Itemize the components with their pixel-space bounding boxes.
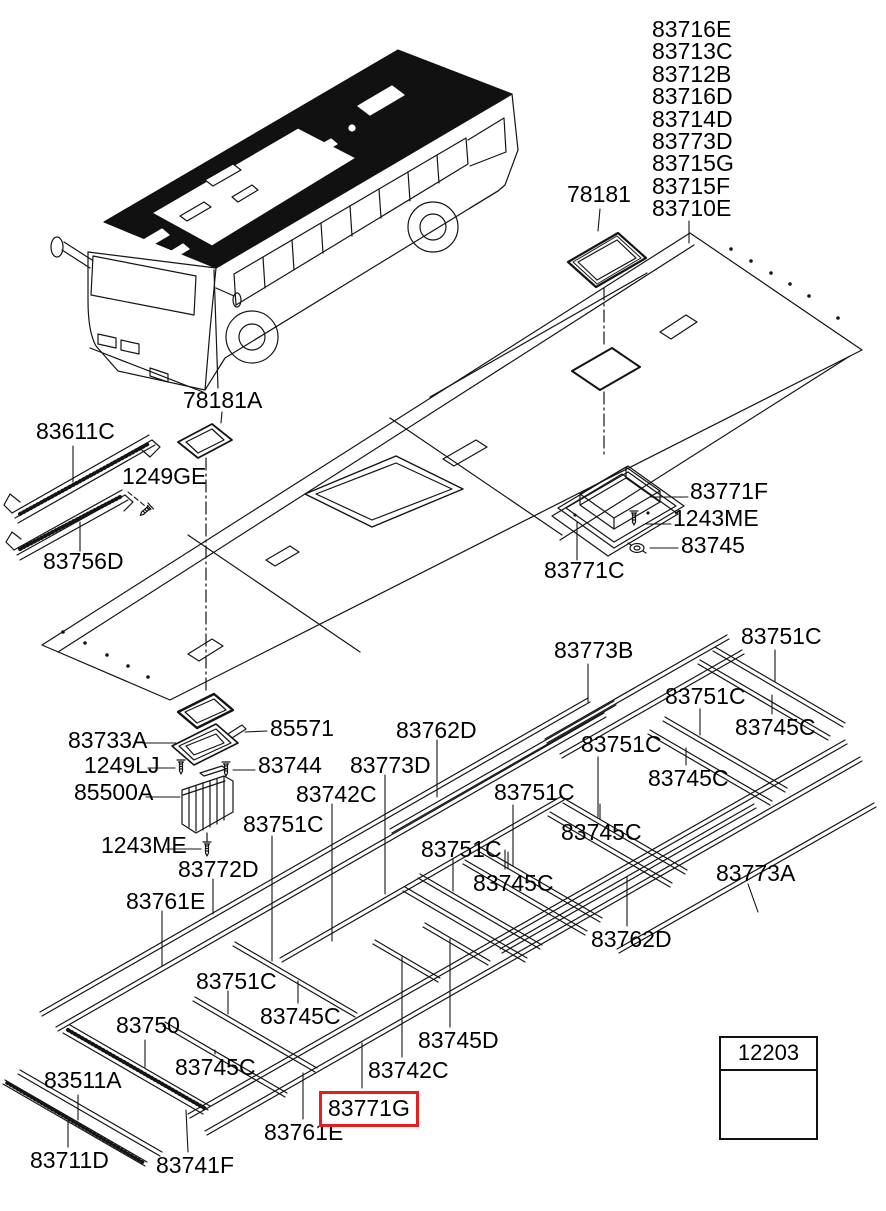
part-label-83751C[interactable]: 83751C <box>243 813 324 836</box>
part-label-83744[interactable]: 83744 <box>258 754 322 777</box>
screw-icon <box>138 503 154 518</box>
part-label-83773B[interactable]: 83773B <box>554 639 633 662</box>
screw-icon <box>222 762 230 776</box>
screw-icon <box>630 511 638 525</box>
part-label-83771C[interactable]: 83771C <box>544 559 625 582</box>
part-label-83711D[interactable]: 83711D <box>30 1149 109 1172</box>
part-label-83745[interactable]: 83745 <box>681 534 745 557</box>
part-label-83751C[interactable]: 83751C <box>196 970 277 993</box>
part-label-83511A[interactable]: 83511A <box>44 1069 122 1092</box>
part-label-83771F[interactable]: 83771F <box>690 480 768 503</box>
parts-diagram-canvas: 83716E83713C83712B83716D83714D83773D8371… <box>0 0 886 1211</box>
part-list-item-83715F[interactable]: 83715F <box>652 175 734 197</box>
part-label-83762D[interactable]: 83762D <box>396 719 477 742</box>
part-label-83745C[interactable]: 83745C <box>175 1056 256 1079</box>
part-list-item-83714D[interactable]: 83714D <box>652 108 734 130</box>
part-number-column: 83716E83713C83712B83716D83714D83773D8371… <box>652 18 734 220</box>
screw-icon <box>721 1071 816 1140</box>
part-list-item-83710E[interactable]: 83710E <box>652 197 734 219</box>
leader-lines <box>68 209 775 1152</box>
part-label-83751C[interactable]: 83751C <box>494 781 575 804</box>
part-list-item-83712B[interactable]: 83712B <box>652 63 734 85</box>
sunroof-seal-78181 <box>568 233 646 287</box>
part-list-item-83716D[interactable]: 83716D <box>652 85 734 107</box>
part-label-1249GE[interactable]: 1249GE <box>122 465 206 488</box>
part-label-83745C[interactable]: 83745C <box>648 767 729 790</box>
part-list-item-83713C[interactable]: 83713C <box>652 40 734 62</box>
part-label-83751C[interactable]: 83751C <box>581 733 662 756</box>
part-label-1243ME[interactable]: 1243ME <box>101 834 187 857</box>
drip-rails-drawing <box>4 435 160 560</box>
part-label-83773D[interactable]: 83773D <box>350 754 431 777</box>
seal-78181A <box>178 424 232 458</box>
part-label-1243ME[interactable]: 1243ME <box>673 507 759 530</box>
legend-part-number: 12203 <box>721 1038 816 1071</box>
selected-part-label-83771G[interactable]: 83771G <box>319 1091 419 1127</box>
part-label-83745C[interactable]: 83745C <box>561 821 642 844</box>
part-list-item-83715G[interactable]: 83715G <box>652 152 734 174</box>
part-label-83751C[interactable]: 83751C <box>741 625 822 648</box>
fastener-legend-box[interactable]: 12203 <box>719 1036 818 1140</box>
strip-85571 <box>228 725 246 738</box>
part-label-83761E[interactable]: 83761E <box>126 890 205 913</box>
part-label-83750[interactable]: 83750 <box>116 1014 180 1037</box>
part-label-83733A[interactable]: 83733A <box>68 729 147 752</box>
part-label-83611C[interactable]: 83611C <box>36 420 115 443</box>
part-label-1249LJ[interactable]: 1249LJ <box>84 754 159 777</box>
part-label-83745C[interactable]: 83745C <box>260 1005 341 1028</box>
part-label-83742C[interactable]: 83742C <box>296 783 377 806</box>
part-label-83772D[interactable]: 83772D <box>178 858 259 881</box>
part-label-78181[interactable]: 78181 <box>567 183 631 206</box>
part-label-83745C[interactable]: 83745C <box>735 716 816 739</box>
screw-icon <box>177 760 185 774</box>
bus-drawing <box>51 50 518 392</box>
part-label-85571[interactable]: 85571 <box>270 717 334 740</box>
part-list-item-83773D[interactable]: 83773D <box>652 130 734 152</box>
part-label-85500A[interactable]: 85500A <box>74 781 153 804</box>
nut-icon <box>628 543 646 553</box>
part-label-83741F[interactable]: 83741F <box>156 1154 234 1177</box>
part-label-78181A[interactable]: 78181A <box>183 389 262 412</box>
part-list-item-83716E[interactable]: 83716E <box>652 18 734 40</box>
part-label-83773A[interactable]: 83773A <box>716 862 795 885</box>
hatch-lid-83733A <box>172 694 238 765</box>
part-label-83756D[interactable]: 83756D <box>43 550 124 573</box>
part-label-83745C[interactable]: 83745C <box>473 872 554 895</box>
pad-85500A <box>182 766 233 841</box>
part-label-83745D[interactable]: 83745D <box>418 1029 499 1052</box>
screw-icon <box>203 842 211 856</box>
part-label-83751C[interactable]: 83751C <box>421 838 502 861</box>
part-label-83762D[interactable]: 83762D <box>591 928 672 951</box>
part-label-83751C[interactable]: 83751C <box>665 685 746 708</box>
hatch-frame-83771C <box>552 466 684 556</box>
part-label-83742C[interactable]: 83742C <box>368 1059 449 1082</box>
